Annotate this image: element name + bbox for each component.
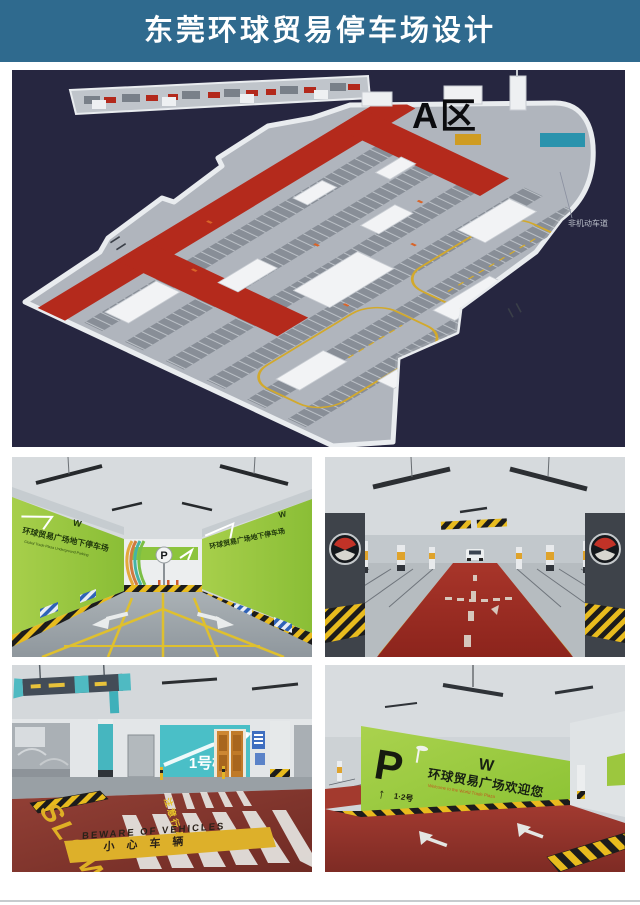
zone-a-label: A区: [412, 95, 478, 136]
center-hazard-strip: [124, 585, 202, 592]
ceiling: [325, 457, 625, 535]
left-foreground-pillar: [325, 513, 365, 657]
car: [466, 549, 484, 561]
plan-main-deck: [21, 70, 625, 447]
teal-pillar: [98, 719, 113, 777]
right-wall: [570, 711, 625, 817]
photo-entrance-ramp: P W 环球贸易广场地下停车场 Global Trade Plaza Under…: [12, 457, 312, 657]
left-equipment: [12, 723, 70, 777]
lane-label: 非机动车道: [568, 218, 608, 228]
photo-welcome-wall: P ↑ 1·2号 W 环球贸易广场欢迎您 Welcome to the Worl…: [325, 665, 625, 872]
parking-plan-render: A区 非机动车道: [12, 70, 625, 447]
poster-page: 东莞环球贸易停车场设计: [0, 0, 640, 905]
header-banner: 东莞环球贸易停车场设计: [0, 0, 640, 62]
plan-upper-strip: [70, 76, 370, 114]
plan-svg: A区 非机动车道: [12, 70, 625, 447]
right-foreground-pillar: [585, 513, 625, 657]
page-title: 东莞环球贸易停车场设计: [0, 0, 640, 62]
photo-crosswalk-area: 1号楼: [12, 665, 312, 872]
photo-red-lane-interior: [325, 457, 625, 657]
wooden-door: [214, 729, 246, 779]
bottom-divider: [0, 900, 640, 902]
svg-text:P: P: [160, 550, 167, 562]
gray-door: [128, 735, 154, 777]
